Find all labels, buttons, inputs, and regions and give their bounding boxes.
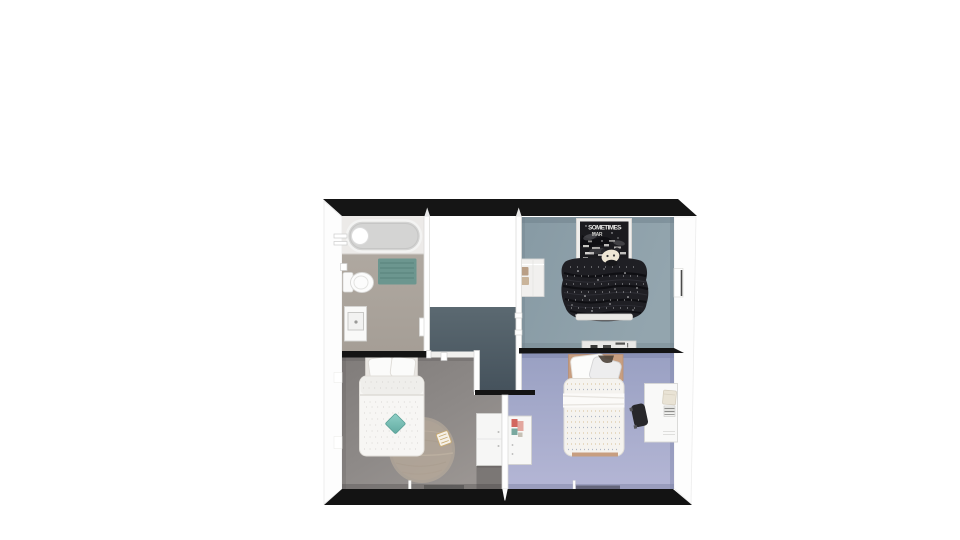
svg-text:SOMETIMES: SOMETIMES	[588, 225, 621, 232]
